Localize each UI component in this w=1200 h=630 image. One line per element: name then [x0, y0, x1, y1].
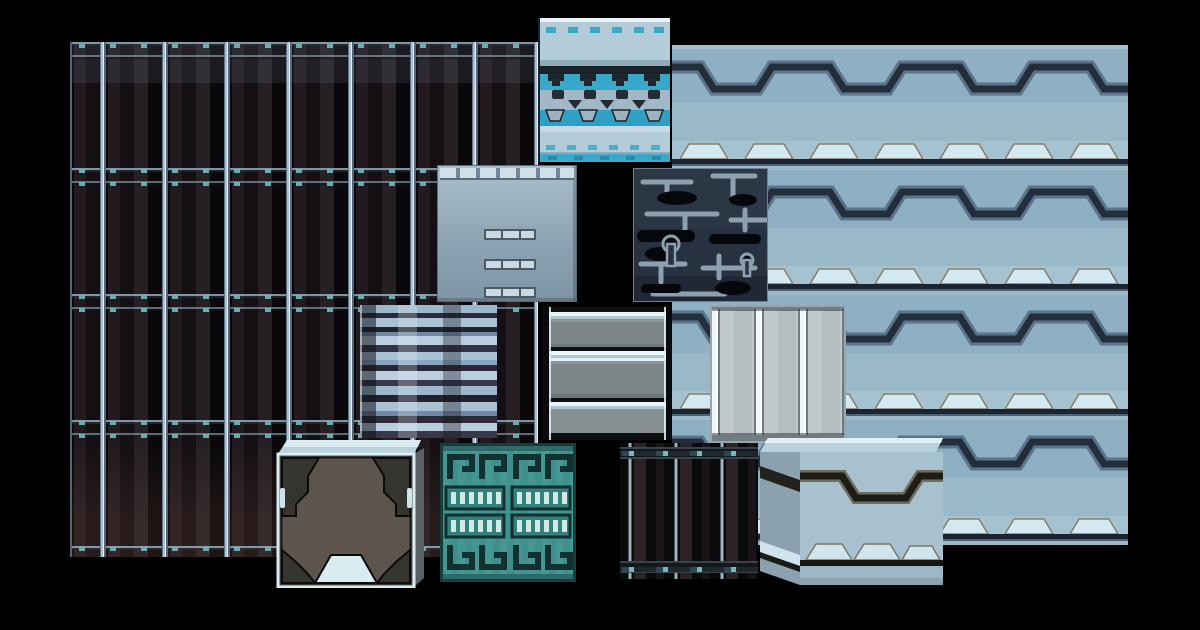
teal-crate-graphic: [440, 443, 576, 582]
tile-pipe-channels: [633, 168, 768, 302]
vent-slot: [484, 287, 536, 298]
texture-sheet-canvas: [0, 0, 1200, 630]
tile-dark-striped-block: [620, 443, 758, 579]
vent-slot: [484, 229, 536, 240]
tile-armored-crate-light: [750, 438, 945, 585]
cyan-strip-graphic: [538, 18, 670, 162]
dark-crate-graphic: [275, 438, 425, 588]
tile-glitch-panel: [360, 305, 497, 438]
tile-armored-crate-dark: [275, 438, 425, 588]
vent-slot: [484, 259, 536, 270]
tile-vent-panel: [437, 165, 577, 302]
tile-teal-circuit-crate: [440, 443, 576, 582]
light-crate-graphic: [750, 438, 945, 585]
tile-cyan-strip: [538, 18, 670, 162]
pipe-channels-graphic: [633, 168, 768, 302]
tile-ridged-barrel: [543, 307, 672, 440]
vent-top-bar: [440, 168, 574, 180]
tile-column-panel: [710, 305, 846, 443]
